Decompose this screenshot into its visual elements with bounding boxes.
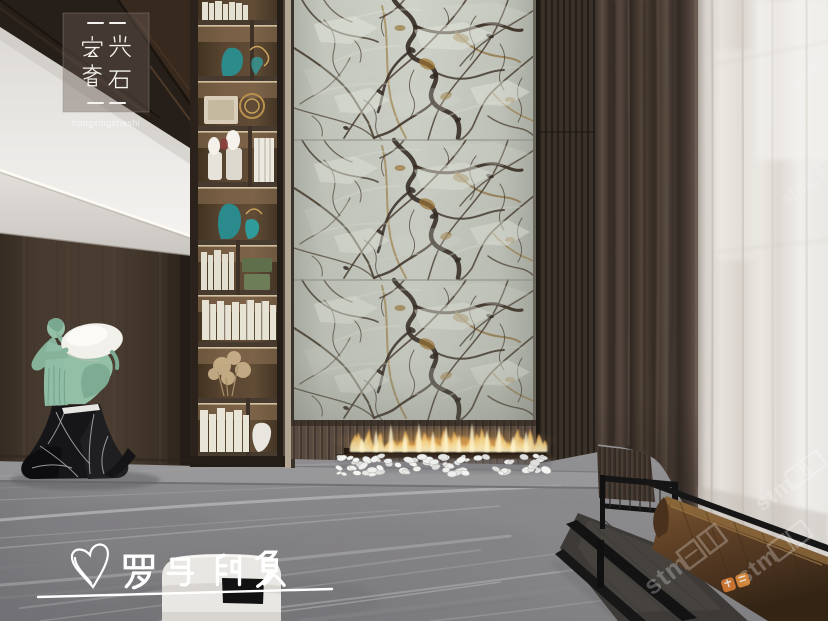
- svg-text:hongxingsheshi: hongxingsheshi: [72, 118, 140, 128]
